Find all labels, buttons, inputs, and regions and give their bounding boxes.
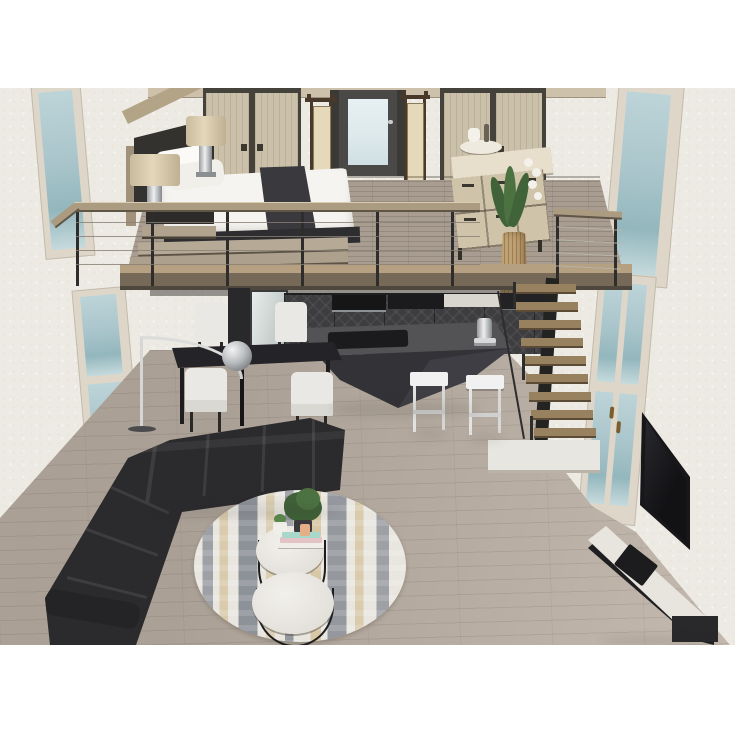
- arc-lamp-pole: [140, 338, 143, 430]
- stair-rail-cable: [497, 291, 525, 439]
- sofa-seam: [261, 418, 267, 492]
- table-lamp-rear[interactable]: [186, 116, 226, 180]
- arc-floor-lamp[interactable]: [120, 328, 270, 438]
- decor-tray[interactable]: [460, 140, 502, 154]
- media-console[interactable]: [580, 518, 730, 645]
- lamp-body: [199, 146, 212, 172]
- stool-shadow: [468, 434, 504, 442]
- stair-tread: [534, 428, 596, 438]
- stair-tread: [514, 284, 576, 294]
- door-handle[interactable]: [388, 120, 393, 124]
- stair-tread: [521, 338, 583, 348]
- lamp-base: [196, 172, 216, 177]
- lamp-finial: [307, 94, 311, 100]
- chair-back: [275, 302, 307, 342]
- lamp-finial: [331, 94, 335, 100]
- stair-tread: [524, 356, 586, 366]
- sofa-seam: [82, 526, 158, 556]
- stair-tread: [526, 374, 588, 384]
- railing-cables: [76, 222, 480, 270]
- railing-handrail: [74, 202, 480, 212]
- sofa-armrest: [42, 588, 141, 630]
- lamp-shade: [186, 116, 226, 146]
- lamp-finial: [402, 91, 406, 97]
- drawer-handle: [462, 184, 474, 187]
- lamp-finial: [424, 91, 428, 97]
- arc-lamp-sphere: [222, 341, 252, 371]
- teapot: [468, 128, 480, 142]
- stool-shadow: [412, 430, 448, 438]
- microwave[interactable]: [332, 295, 386, 312]
- orchid-flower: [532, 168, 541, 177]
- decor-bottle: [484, 124, 489, 142]
- stair-rail-post: [522, 354, 525, 380]
- lamp-shade: [130, 154, 180, 186]
- stair-tread: [519, 320, 581, 330]
- window-glass: [80, 294, 123, 377]
- stair-rail-post: [530, 416, 533, 442]
- cooktop[interactable]: [388, 295, 444, 309]
- stair-tread: [516, 302, 578, 312]
- sofa-seam: [202, 424, 210, 496]
- loft-scene: [0, 88, 735, 645]
- lamp-paper-panel: [407, 103, 424, 181]
- stair-tread: [529, 392, 591, 402]
- candle[interactable]: [300, 524, 310, 536]
- chair-back: [291, 372, 333, 416]
- stair-tread: [531, 410, 593, 420]
- console-shadow: [600, 636, 720, 645]
- sofa-shadow: [150, 504, 340, 518]
- sofa-seam: [312, 418, 315, 492]
- stool-seat: [410, 372, 448, 386]
- island-shadow: [330, 402, 480, 416]
- arc-lamp-base: [128, 426, 156, 432]
- screenshot-canvas: [0, 0, 735, 735]
- stair-landing: [488, 440, 600, 473]
- stair-rail-post: [513, 282, 516, 308]
- coffee-table-small[interactable]: [252, 572, 334, 634]
- orchid-flower: [524, 158, 533, 167]
